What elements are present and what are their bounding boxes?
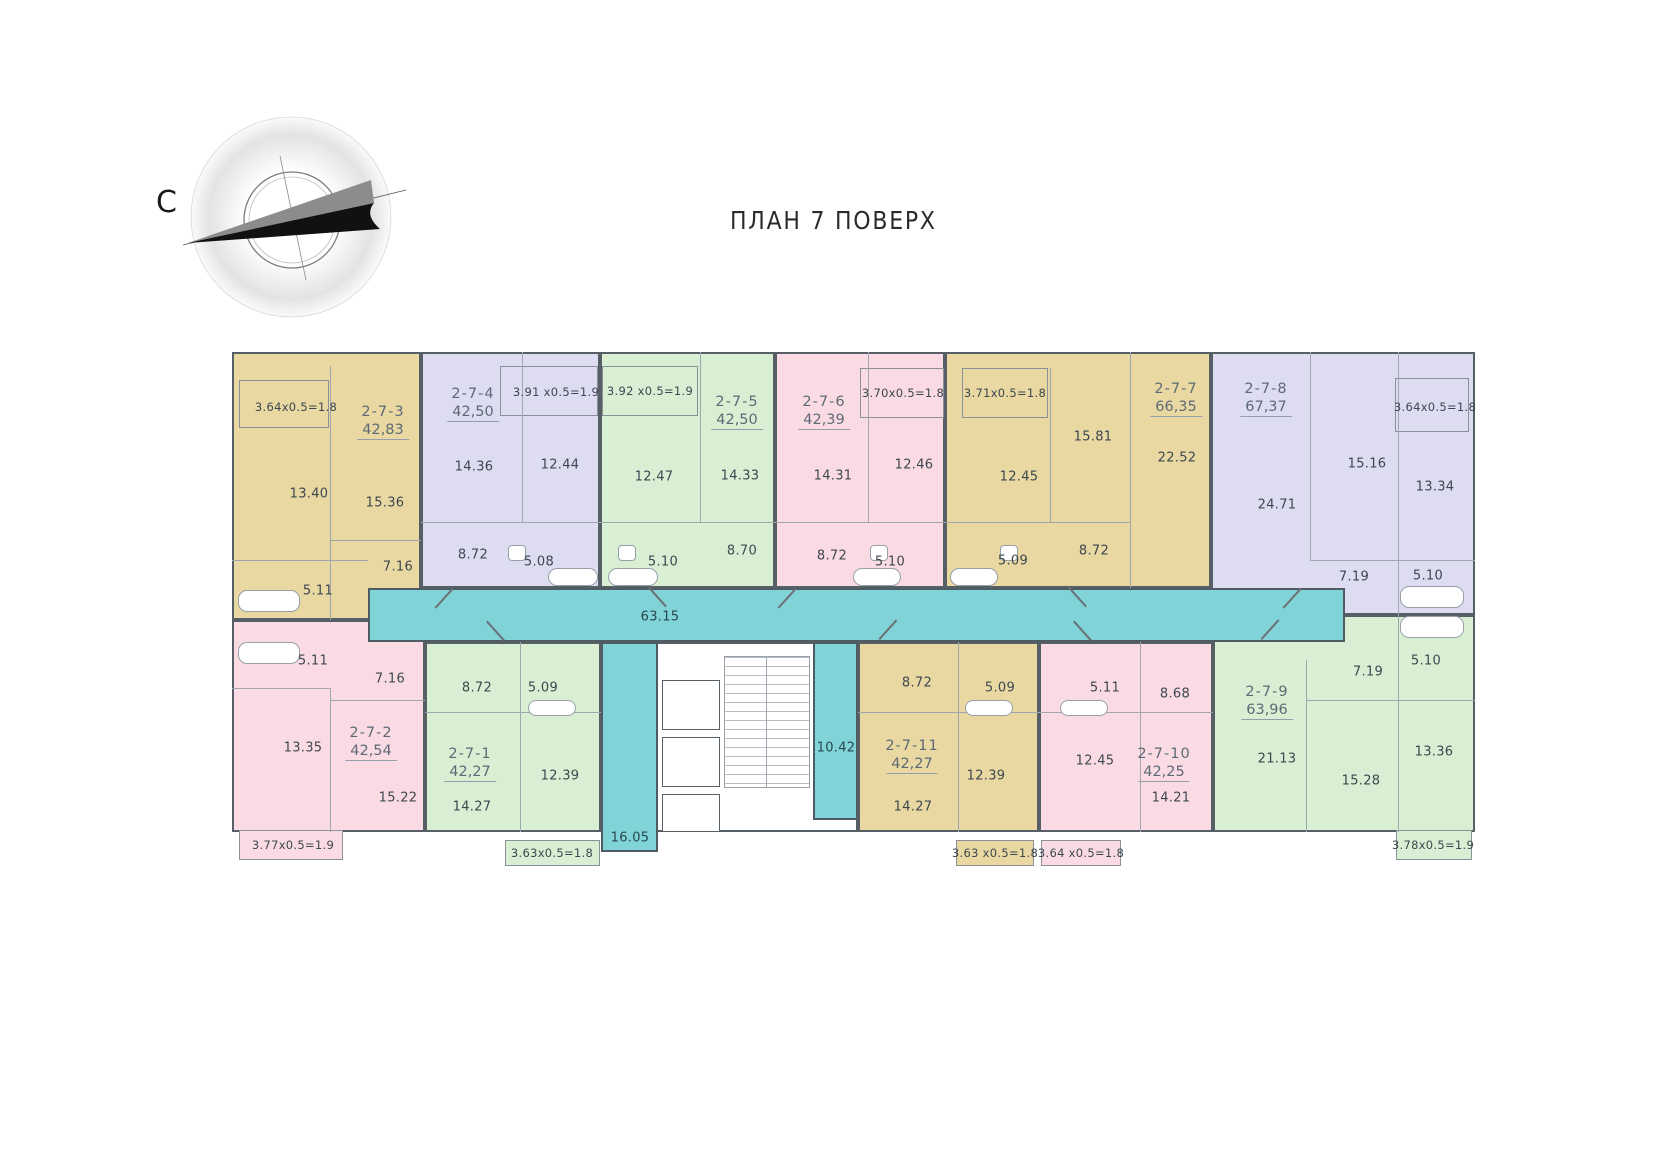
balcony-dimension-label: 3.91 x0.5=1.9 (513, 385, 599, 399)
room-area-label: 5.08 (524, 555, 554, 570)
room-area-label: 8.70 (727, 544, 757, 559)
corridor (368, 588, 1345, 642)
bathtub-icon (238, 642, 300, 664)
apartment-number: 2-7-5 (715, 394, 758, 410)
apartment-number: 2-7-7 (1154, 381, 1197, 397)
room-area-label: 7.16 (383, 560, 413, 575)
apartment-label-2-7-8: 2-7-8 67,37 (1240, 381, 1292, 417)
apartment-total-area: 42,50 (447, 404, 499, 422)
balcony-dimension-label: 3.64x0.5=1.8 (1394, 400, 1476, 414)
elevator-shaft (662, 737, 720, 787)
apartment-number: 2-7-3 (361, 404, 404, 420)
apartment-number: 2-7-4 (451, 386, 494, 402)
room-area-label: 8.72 (458, 548, 488, 563)
apartment-total-area: 63,96 (1241, 702, 1293, 720)
bathtub-icon (950, 568, 998, 586)
room-area-label: 13.40 (290, 487, 329, 502)
apartment-2-7-1-block (425, 642, 601, 832)
apartment-2-7-11-block (858, 642, 1039, 832)
room-area-label: 22.52 (1158, 451, 1197, 466)
apartment-label-2-7-7: 2-7-7 66,35 (1150, 381, 1202, 417)
room-area-label: 12.44 (541, 458, 580, 473)
apartment-label-2-7-5: 2-7-5 42,50 (711, 394, 763, 430)
balcony-dimension-label: 3.78x0.5=1.9 (1392, 838, 1474, 852)
room-area-label: 15.81 (1074, 430, 1113, 445)
room-area-label: 8.72 (817, 549, 847, 564)
room-area-label: 14.33 (721, 469, 760, 484)
room-area-label: 15.36 (366, 496, 405, 511)
north-label: С (156, 185, 177, 220)
bathtub-icon (853, 568, 901, 586)
bathtub-icon (548, 568, 598, 586)
balcony-dimension-label: 3.71x0.5=1.8 (964, 386, 1046, 400)
apartment-total-area: 42,54 (345, 743, 397, 761)
room-area-label: 5.11 (1090, 681, 1120, 696)
room-area-label: 5.09 (528, 681, 558, 696)
apartment-total-area: 66,35 (1150, 399, 1202, 417)
corridor-area-label: 63.15 (641, 610, 680, 625)
room-area-label: 15.16 (1348, 457, 1387, 472)
apartment-number: 2-7-10 (1137, 746, 1190, 762)
lobby-left (601, 642, 658, 852)
apartment-total-area: 42,25 (1138, 764, 1190, 782)
apartment-2-7-9-block (1213, 615, 1475, 832)
apartment-total-area: 42,27 (886, 756, 938, 774)
room-area-label: 14.27 (894, 800, 933, 815)
room-area-label: 14.36 (455, 460, 494, 475)
apartment-total-area: 67,37 (1240, 399, 1292, 417)
toilet-icon (618, 545, 636, 561)
compass-rose: С (150, 90, 430, 350)
apartment-label-2-7-1: 2-7-1 42,27 (444, 746, 496, 782)
room-area-label: 12.45 (1076, 754, 1115, 769)
apartment-total-area: 42,83 (357, 422, 409, 440)
floor-plan-page: С ПЛАН 7 ПОВЕРХ (0, 0, 1655, 1170)
room-area-label: 7.19 (1353, 665, 1383, 680)
room-area-label: 5.10 (648, 555, 678, 570)
lobby-right (813, 642, 858, 820)
room-area-label: 5.11 (298, 654, 328, 669)
room-area-label: 12.47 (635, 470, 674, 485)
apartment-label-2-7-3: 2-7-3 42,83 (357, 404, 409, 440)
balcony-dimension-label: 3.63 x0.5=1.8 (952, 846, 1038, 860)
room-area-label: 14.27 (453, 800, 492, 815)
bathtub-icon (608, 568, 658, 586)
room-area-label: 13.34 (1416, 480, 1455, 495)
room-area-label: 21.13 (1258, 752, 1297, 767)
room-area-label: 24.71 (1258, 498, 1297, 513)
apartment-label-2-7-6: 2-7-6 42,39 (798, 394, 850, 430)
apartment-number: 2-7-1 (448, 746, 491, 762)
room-area-label: 14.31 (814, 469, 853, 484)
room-area-label: 5.10 (1413, 569, 1443, 584)
apartment-label-2-7-9: 2-7-9 63,96 (1241, 684, 1293, 720)
balcony-dimension-label: 3.70x0.5=1.8 (862, 386, 944, 400)
room-area-label: 8.72 (462, 681, 492, 696)
bathtub-icon (1060, 700, 1108, 716)
room-area-label: 8.72 (902, 676, 932, 691)
room-area-label: 5.09 (998, 554, 1028, 569)
elevator-shaft (662, 794, 720, 832)
balcony-dimension-label: 3.77x0.5=1.9 (252, 838, 334, 852)
lobby-left-area-label: 16.05 (611, 831, 650, 846)
apartment-total-area: 42,39 (798, 412, 850, 430)
apartment-label-2-7-4: 2-7-4 42,50 (447, 386, 499, 422)
bathtub-icon (1400, 616, 1464, 638)
room-area-label: 14.21 (1152, 791, 1191, 806)
balcony-dimension-label: 3.63x0.5=1.8 (511, 846, 593, 860)
bathtub-icon (1400, 586, 1464, 608)
apartment-total-area: 42,27 (444, 764, 496, 782)
room-area-label: 8.68 (1160, 687, 1190, 702)
room-area-label: 12.39 (967, 769, 1006, 784)
balcony-dimension-label: 3.92 x0.5=1.9 (607, 384, 693, 398)
plan-title: ПЛАН 7 ПОВЕРХ (730, 206, 937, 235)
balcony-dimension-label: 3.64x0.5=1.8 (255, 400, 337, 414)
room-area-label: 15.28 (1342, 774, 1381, 789)
room-area-label: 12.39 (541, 769, 580, 784)
bathtub-icon (238, 590, 300, 612)
apartment-number: 2-7-2 (349, 725, 392, 741)
apartment-number: 2-7-9 (1245, 684, 1288, 700)
apartment-total-area: 42,50 (711, 412, 763, 430)
bathtub-icon (528, 700, 576, 716)
room-area-label: 12.45 (1000, 470, 1039, 485)
apartment-number: 2-7-6 (802, 394, 845, 410)
apartment-number: 2-7-8 (1244, 381, 1287, 397)
lobby-right-area-label: 10.42 (817, 741, 856, 756)
apartment-label-2-7-11: 2-7-11 42,27 (885, 738, 938, 774)
room-area-label: 7.16 (375, 672, 405, 687)
room-area-label: 15.22 (379, 791, 418, 806)
bathtub-icon (965, 700, 1013, 716)
apartment-label-2-7-2: 2-7-2 42,54 (345, 725, 397, 761)
apartment-label-2-7-10: 2-7-10 42,25 (1137, 746, 1190, 782)
room-area-label: 8.72 (1079, 544, 1109, 559)
room-area-label: 5.11 (303, 584, 333, 599)
room-area-label: 7.19 (1339, 570, 1369, 585)
balcony-dimension-label: 3.64 x0.5=1.8 (1038, 846, 1124, 860)
elevator-shaft (662, 680, 720, 730)
stairs (724, 656, 810, 788)
room-area-label: 13.35 (284, 741, 323, 756)
room-area-label: 5.10 (1411, 654, 1441, 669)
room-area-label: 5.10 (875, 555, 905, 570)
room-area-label: 13.36 (1415, 745, 1454, 760)
room-area-label: 5.09 (985, 681, 1015, 696)
apartment-number: 2-7-11 (885, 738, 938, 754)
room-area-label: 12.46 (895, 458, 934, 473)
